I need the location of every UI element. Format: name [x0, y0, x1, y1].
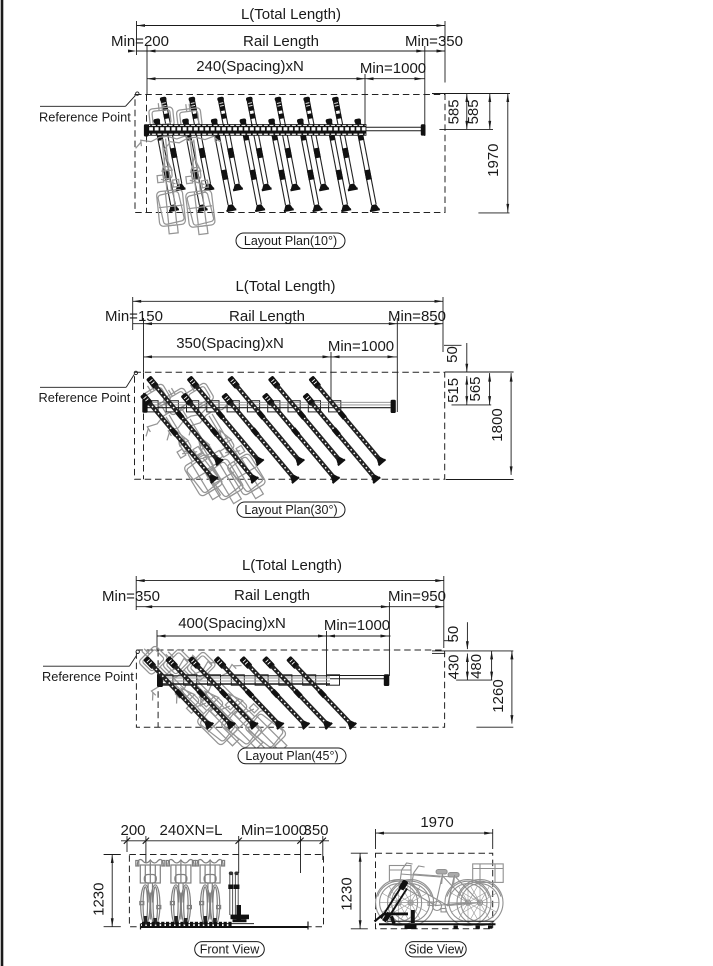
svg-text:Min=350: Min=350 — [405, 33, 463, 50]
svg-text:Rail Length: Rail Length — [234, 587, 310, 604]
svg-text:Min=850: Min=850 — [388, 308, 446, 325]
svg-text:Rail Length: Rail Length — [229, 308, 305, 325]
svg-text:Min=1000: Min=1000 — [328, 338, 394, 355]
svg-text:1970: 1970 — [485, 144, 502, 177]
svg-text:Min=200: Min=200 — [111, 33, 169, 50]
svg-text:Min=1000: Min=1000 — [324, 617, 390, 634]
svg-text:Min=950: Min=950 — [388, 588, 446, 605]
svg-text:1230: 1230 — [339, 877, 356, 910]
svg-text:Min=150: Min=150 — [105, 308, 163, 325]
svg-text:480: 480 — [468, 654, 485, 679]
svg-text:L(Total Length): L(Total Length) — [235, 278, 335, 295]
svg-text:1230: 1230 — [91, 883, 108, 916]
svg-text:Rail Length: Rail Length — [243, 33, 319, 50]
svg-text:1800: 1800 — [489, 408, 506, 441]
svg-text:Layout Plan(10°): Layout Plan(10°) — [244, 234, 337, 248]
svg-text:200: 200 — [120, 822, 145, 839]
svg-text:50: 50 — [445, 626, 462, 643]
svg-text:50: 50 — [444, 346, 461, 363]
svg-text:Side View: Side View — [408, 943, 464, 957]
svg-text:L(Total Length): L(Total Length) — [242, 557, 342, 574]
svg-text:Layout Plan(30°): Layout Plan(30°) — [244, 503, 337, 517]
svg-text:515: 515 — [445, 378, 462, 403]
svg-text:Layout Plan(45°): Layout Plan(45°) — [245, 749, 338, 763]
svg-text:240(Spacing)xN: 240(Spacing)xN — [196, 58, 304, 75]
svg-text:Front View: Front View — [200, 943, 260, 957]
svg-text:585: 585 — [446, 99, 463, 124]
svg-text:Min=1000: Min=1000 — [241, 822, 307, 839]
svg-text:240XN=L: 240XN=L — [160, 822, 223, 839]
svg-text:565: 565 — [467, 376, 484, 401]
svg-text:430: 430 — [446, 654, 463, 679]
svg-text:Reference Point: Reference Point — [42, 669, 134, 684]
svg-text:L(Total Length): L(Total Length) — [241, 6, 341, 23]
svg-text:400(Spacing)xN: 400(Spacing)xN — [178, 615, 286, 632]
svg-text:585: 585 — [465, 99, 482, 124]
svg-text:Reference Point: Reference Point — [39, 110, 131, 125]
svg-text:350(Spacing)xN: 350(Spacing)xN — [176, 335, 284, 352]
svg-text:1970: 1970 — [420, 814, 453, 831]
svg-text:Min=1000: Min=1000 — [360, 60, 426, 77]
svg-text:350: 350 — [303, 822, 328, 839]
svg-text:Min=350: Min=350 — [102, 588, 160, 605]
svg-text:Reference Point: Reference Point — [39, 390, 131, 405]
svg-text:1260: 1260 — [490, 679, 507, 712]
